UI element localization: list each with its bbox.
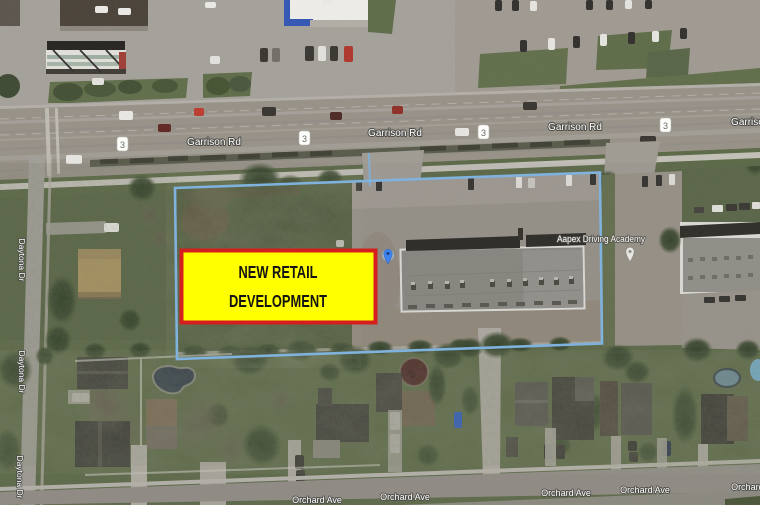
svg-text:Orchard Ave: Orchard Ave	[292, 495, 342, 505]
svg-text:Garrison Rd: Garrison Rd	[368, 128, 422, 139]
svg-text:NEW RETAIL: NEW RETAIL	[239, 262, 318, 282]
svg-text:Daytona Dr: Daytona Dr	[17, 351, 27, 394]
svg-text:Orchard Ave: Orchard Ave	[731, 482, 760, 492]
svg-text:3: 3	[663, 121, 668, 131]
svg-text:3: 3	[120, 140, 125, 150]
svg-text:Daytona Dr: Daytona Dr	[17, 239, 27, 282]
svg-text:Orchard Ave: Orchard Ave	[380, 492, 430, 502]
svg-text:3: 3	[481, 128, 486, 138]
svg-text:Aapex Driving Academy: Aapex Driving Academy	[557, 234, 645, 244]
svg-text:Daytona Dr: Daytona Dr	[15, 456, 25, 499]
svg-text:Orchard Ave: Orchard Ave	[620, 485, 670, 495]
svg-text:Garrison Rd: Garrison Rd	[187, 137, 241, 148]
svg-text:3: 3	[302, 134, 307, 144]
svg-text:DEVELOPMENT: DEVELOPMENT	[229, 291, 327, 311]
svg-text:Orchard Ave: Orchard Ave	[541, 488, 591, 498]
svg-text:Garrison Rd: Garrison Rd	[731, 117, 760, 128]
svg-text:Garrison Rd: Garrison Rd	[548, 122, 602, 133]
